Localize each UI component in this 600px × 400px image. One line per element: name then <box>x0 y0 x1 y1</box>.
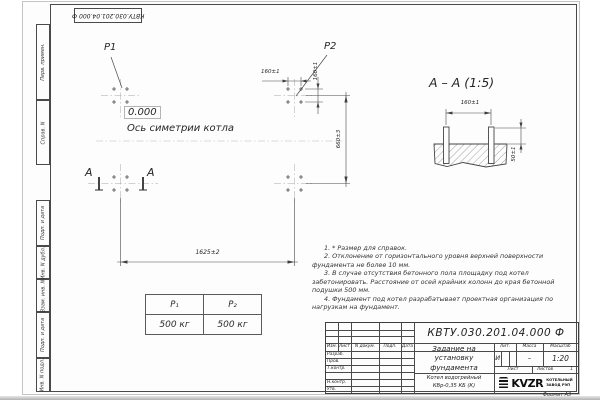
tb-doc-title: Задание на установку фундамента <box>414 343 494 373</box>
note-4: 4. Фундамент под котел разрабатывает про… <box>312 295 564 312</box>
side-strip-inv-dubl: Инв. N дубл. <box>36 246 50 279</box>
load-table-header-p2: Р₂ <box>204 295 262 315</box>
tb-sheet-label: Лист <box>494 366 532 373</box>
tb-logo-cell: KVZR КОТЕЛЬНЫЙ ЗАВОД РЭП <box>494 373 578 393</box>
side-strip-sprav-n: Справ. N <box>36 100 50 165</box>
kvzr-logo-icon <box>499 377 508 389</box>
tb-sheets-label: Листов <box>537 367 553 372</box>
elevation-mark: 0.000 <box>124 106 161 119</box>
load-table-header-p1: Р₁ <box>146 295 204 315</box>
technical-notes: 1. * Размер для справок. 2. Отклонение о… <box>312 244 564 312</box>
load-point-p1-label: P1 <box>104 42 116 53</box>
tb-mass-value: – <box>516 351 543 367</box>
title-block: Изм. Лист N докум. Подп. Дата Разраб. Пр… <box>325 322 579 394</box>
tb-col-list: Лист <box>338 343 351 351</box>
dim-section-50: 50±1 <box>511 139 517 169</box>
tb-row-prov: Пров. <box>327 358 351 365</box>
tb-sheets-value: 1 <box>570 367 573 372</box>
section-view-title: А – А (1:5) <box>429 75 494 90</box>
side-strip-perv-primen: Перв. примен. <box>36 24 50 100</box>
section-letter-right: А <box>147 166 155 179</box>
side-strip-podp-data-2: Подп. и дата <box>36 312 50 358</box>
load-table-header-row: Р₁ Р₂ <box>146 295 262 315</box>
tb-row-razrab: Разраб. <box>327 351 351 358</box>
drawing-sheet: Перв. примен. Справ. N Подп. и дата Инв.… <box>0 0 600 400</box>
tb-sheets-cell: Листов 1 <box>532 366 578 373</box>
note-2: 2. Отклонение от горизонтального уровня … <box>312 252 564 269</box>
load-table: Р₁ Р₂ 500 кг 500 кг <box>145 294 262 335</box>
tb-scale-header: Масштаб <box>543 343 578 351</box>
load-table-value-row: 500 кг 500 кг <box>146 315 262 335</box>
side-strip-podp-data-1: Подп. и дата <box>36 200 50 246</box>
tb-col-podp: Подп. <box>379 343 401 351</box>
load-point-p2-label: P2 <box>324 41 336 52</box>
tb-row-tkontr: Т.контр. <box>327 365 351 372</box>
tb-designation: КВТУ.030.201.04.000 Ф <box>414 323 578 343</box>
load-table-value-p1: 500 кг <box>146 315 204 335</box>
note-1: 1. * Размер для справок. <box>312 244 564 252</box>
tb-col-ndokum: N докум. <box>351 343 379 351</box>
tb-mass-header: Масса <box>516 343 543 351</box>
section-letter-left: А <box>85 166 93 179</box>
dim-660: 660±3 <box>336 124 342 154</box>
dim-160-top: 160±1 <box>261 69 280 75</box>
dim-section-160: 160±1 <box>448 100 492 106</box>
sheet-bottom-edge <box>0 396 600 400</box>
top-designation-stamp: КВТУ.030.201.04.000 Ф <box>74 8 142 23</box>
symmetry-axis-label: Ось симетрии котла <box>127 123 234 134</box>
note-3: 3. В случае отсутствия бетонного пола пл… <box>312 269 564 294</box>
tb-row-nkontr: Н.контр. <box>327 379 351 386</box>
load-table-value-p2: 500 кг <box>204 315 262 335</box>
dim-1625: 1625±2 <box>150 249 265 256</box>
tb-lit-value: И <box>494 351 501 367</box>
tb-col-izm: Изм. <box>326 343 338 351</box>
tb-product-name: Котел водогрейный КВр-0,35 КБ (К) <box>414 373 494 393</box>
top-designation-text: КВТУ.030.201.04.000 Ф <box>72 12 144 19</box>
tb-lit-header: Лит. <box>494 343 516 351</box>
tb-scale-value: 1:20 <box>543 351 578 367</box>
side-strip-inv-podl: Инв. N подл. <box>36 358 50 392</box>
side-strip-vzam-inv: Взам. инв. N <box>36 279 50 312</box>
tb-col-data: Дата <box>401 343 414 351</box>
tb-row-utv: Утв. <box>327 386 351 393</box>
dim-160-side: 160±1 <box>313 56 319 86</box>
kvzr-logo-caption: КОТЕЛЬНЫЙ ЗАВОД РЭП <box>546 378 572 388</box>
kvzr-logo-text: KVZR <box>511 377 543 390</box>
